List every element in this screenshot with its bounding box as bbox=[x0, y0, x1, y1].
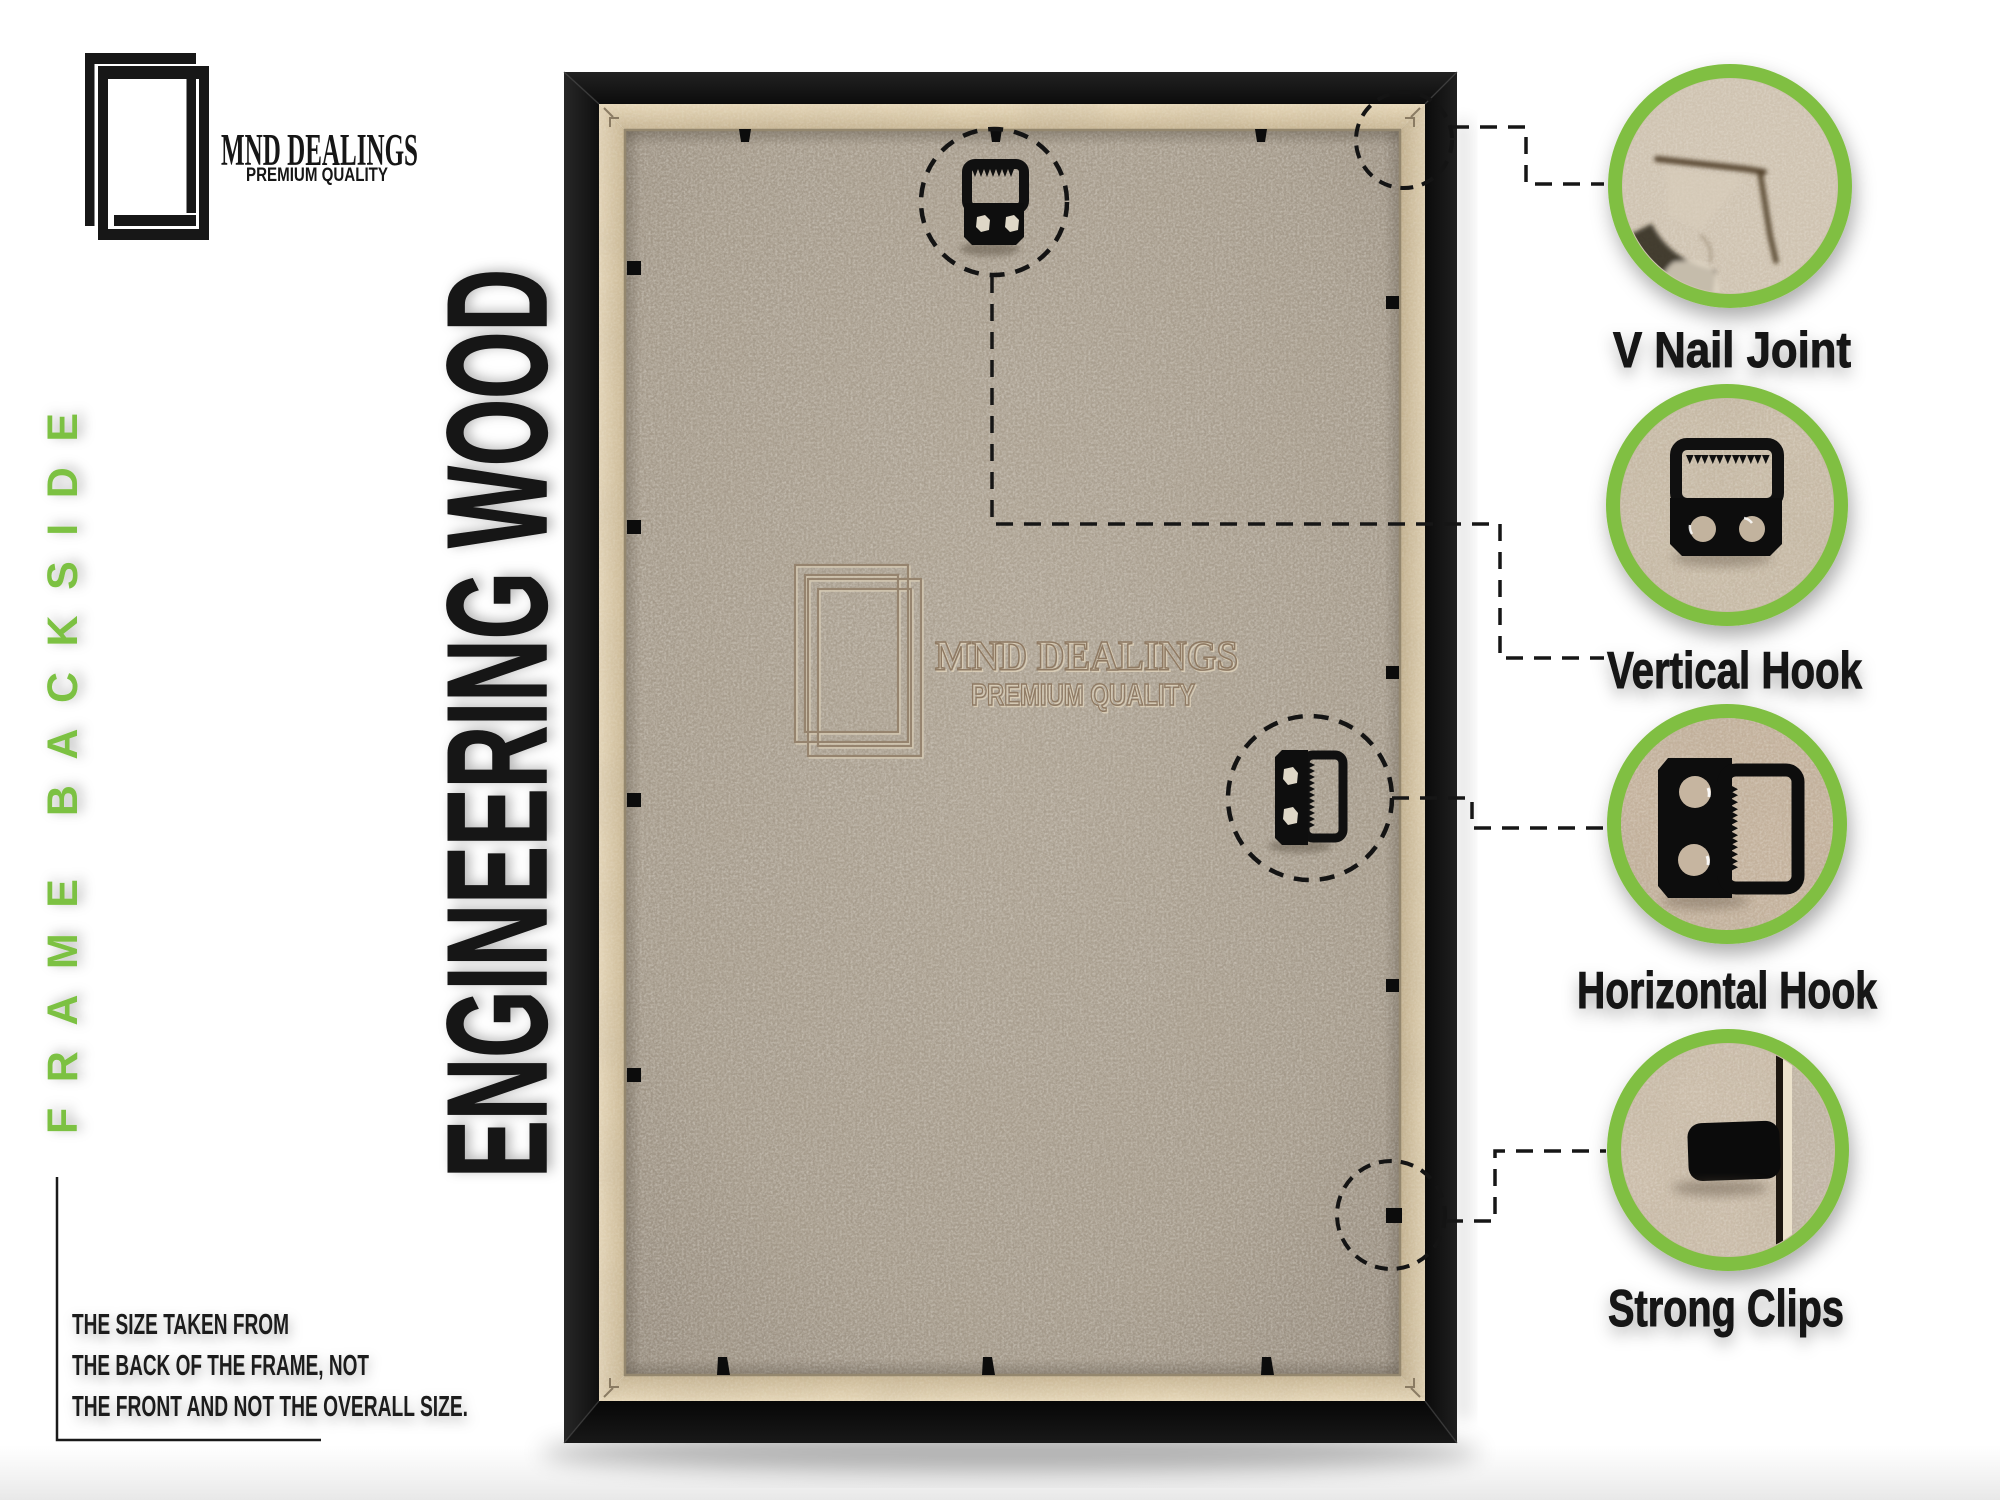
svg-text:PREMIUM QUALITY: PREMIUM QUALITY bbox=[246, 164, 388, 186]
svg-text:MND DEALINGS: MND DEALINGS bbox=[935, 634, 1238, 680]
svg-text:THE SIZE TAKEN FROM: THE SIZE TAKEN FROM bbox=[72, 1309, 289, 1341]
svg-text:Strong Clips: Strong Clips bbox=[1608, 1280, 1844, 1338]
svg-text:THE FRONT AND NOT THE OVERALL: THE FRONT AND NOT THE OVERALL SIZE. bbox=[72, 1391, 468, 1423]
svg-text:PREMIUM QUALITY: PREMIUM QUALITY bbox=[971, 677, 1195, 712]
svg-text:ENGINEERING WOOD: ENGINEERING WOOD bbox=[418, 269, 577, 1178]
svg-text:Horizontal Hook: Horizontal Hook bbox=[1577, 962, 1877, 1020]
svg-text:THE BACK OF THE FRAME, NOT: THE BACK OF THE FRAME, NOT bbox=[72, 1350, 369, 1382]
svg-text:Vertical Hook: Vertical Hook bbox=[1607, 642, 1862, 700]
svg-text:V Nail Joint: V Nail Joint bbox=[1613, 322, 1851, 378]
